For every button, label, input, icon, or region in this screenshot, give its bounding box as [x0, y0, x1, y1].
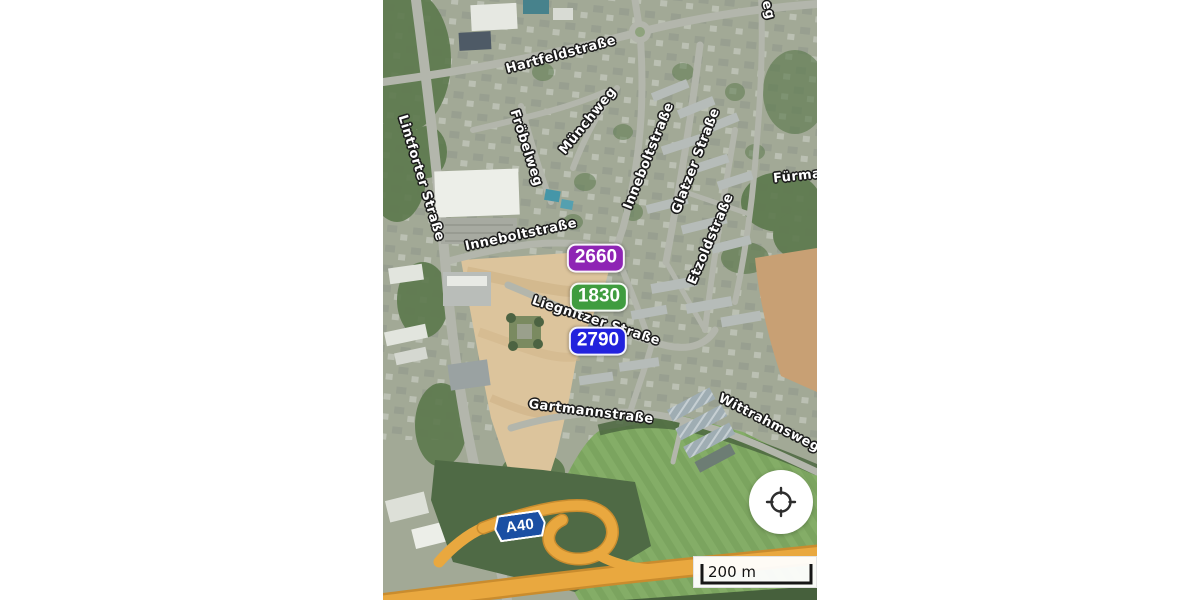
scale-bar: 200 m — [693, 556, 817, 588]
highway-badge-label: A40 — [505, 516, 536, 537]
highway-badge-fill: A40 — [495, 511, 546, 540]
app-window: Hartfeldstraße Fröbelweg Münchweg Innebo… — [0, 0, 1200, 600]
price-marker-2660[interactable]: 2660 — [567, 244, 625, 273]
scale-bar-label: 200 m — [708, 563, 756, 581]
crosshair-locate-icon — [765, 486, 797, 518]
price-marker-2790[interactable]: 2790 — [569, 327, 627, 356]
locate-button[interactable] — [749, 470, 813, 534]
map-canvas[interactable]: Hartfeldstraße Fröbelweg Münchweg Innebo… — [383, 0, 817, 600]
price-marker-1830[interactable]: 1830 — [570, 283, 628, 312]
